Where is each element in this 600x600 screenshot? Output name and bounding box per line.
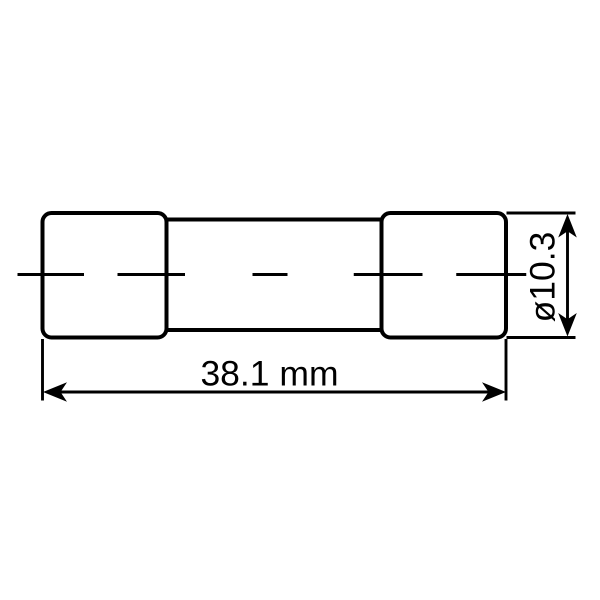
svg-text:ø10.3: ø10.3	[523, 232, 563, 323]
svg-text:38.1 mm: 38.1 mm	[200, 354, 338, 394]
